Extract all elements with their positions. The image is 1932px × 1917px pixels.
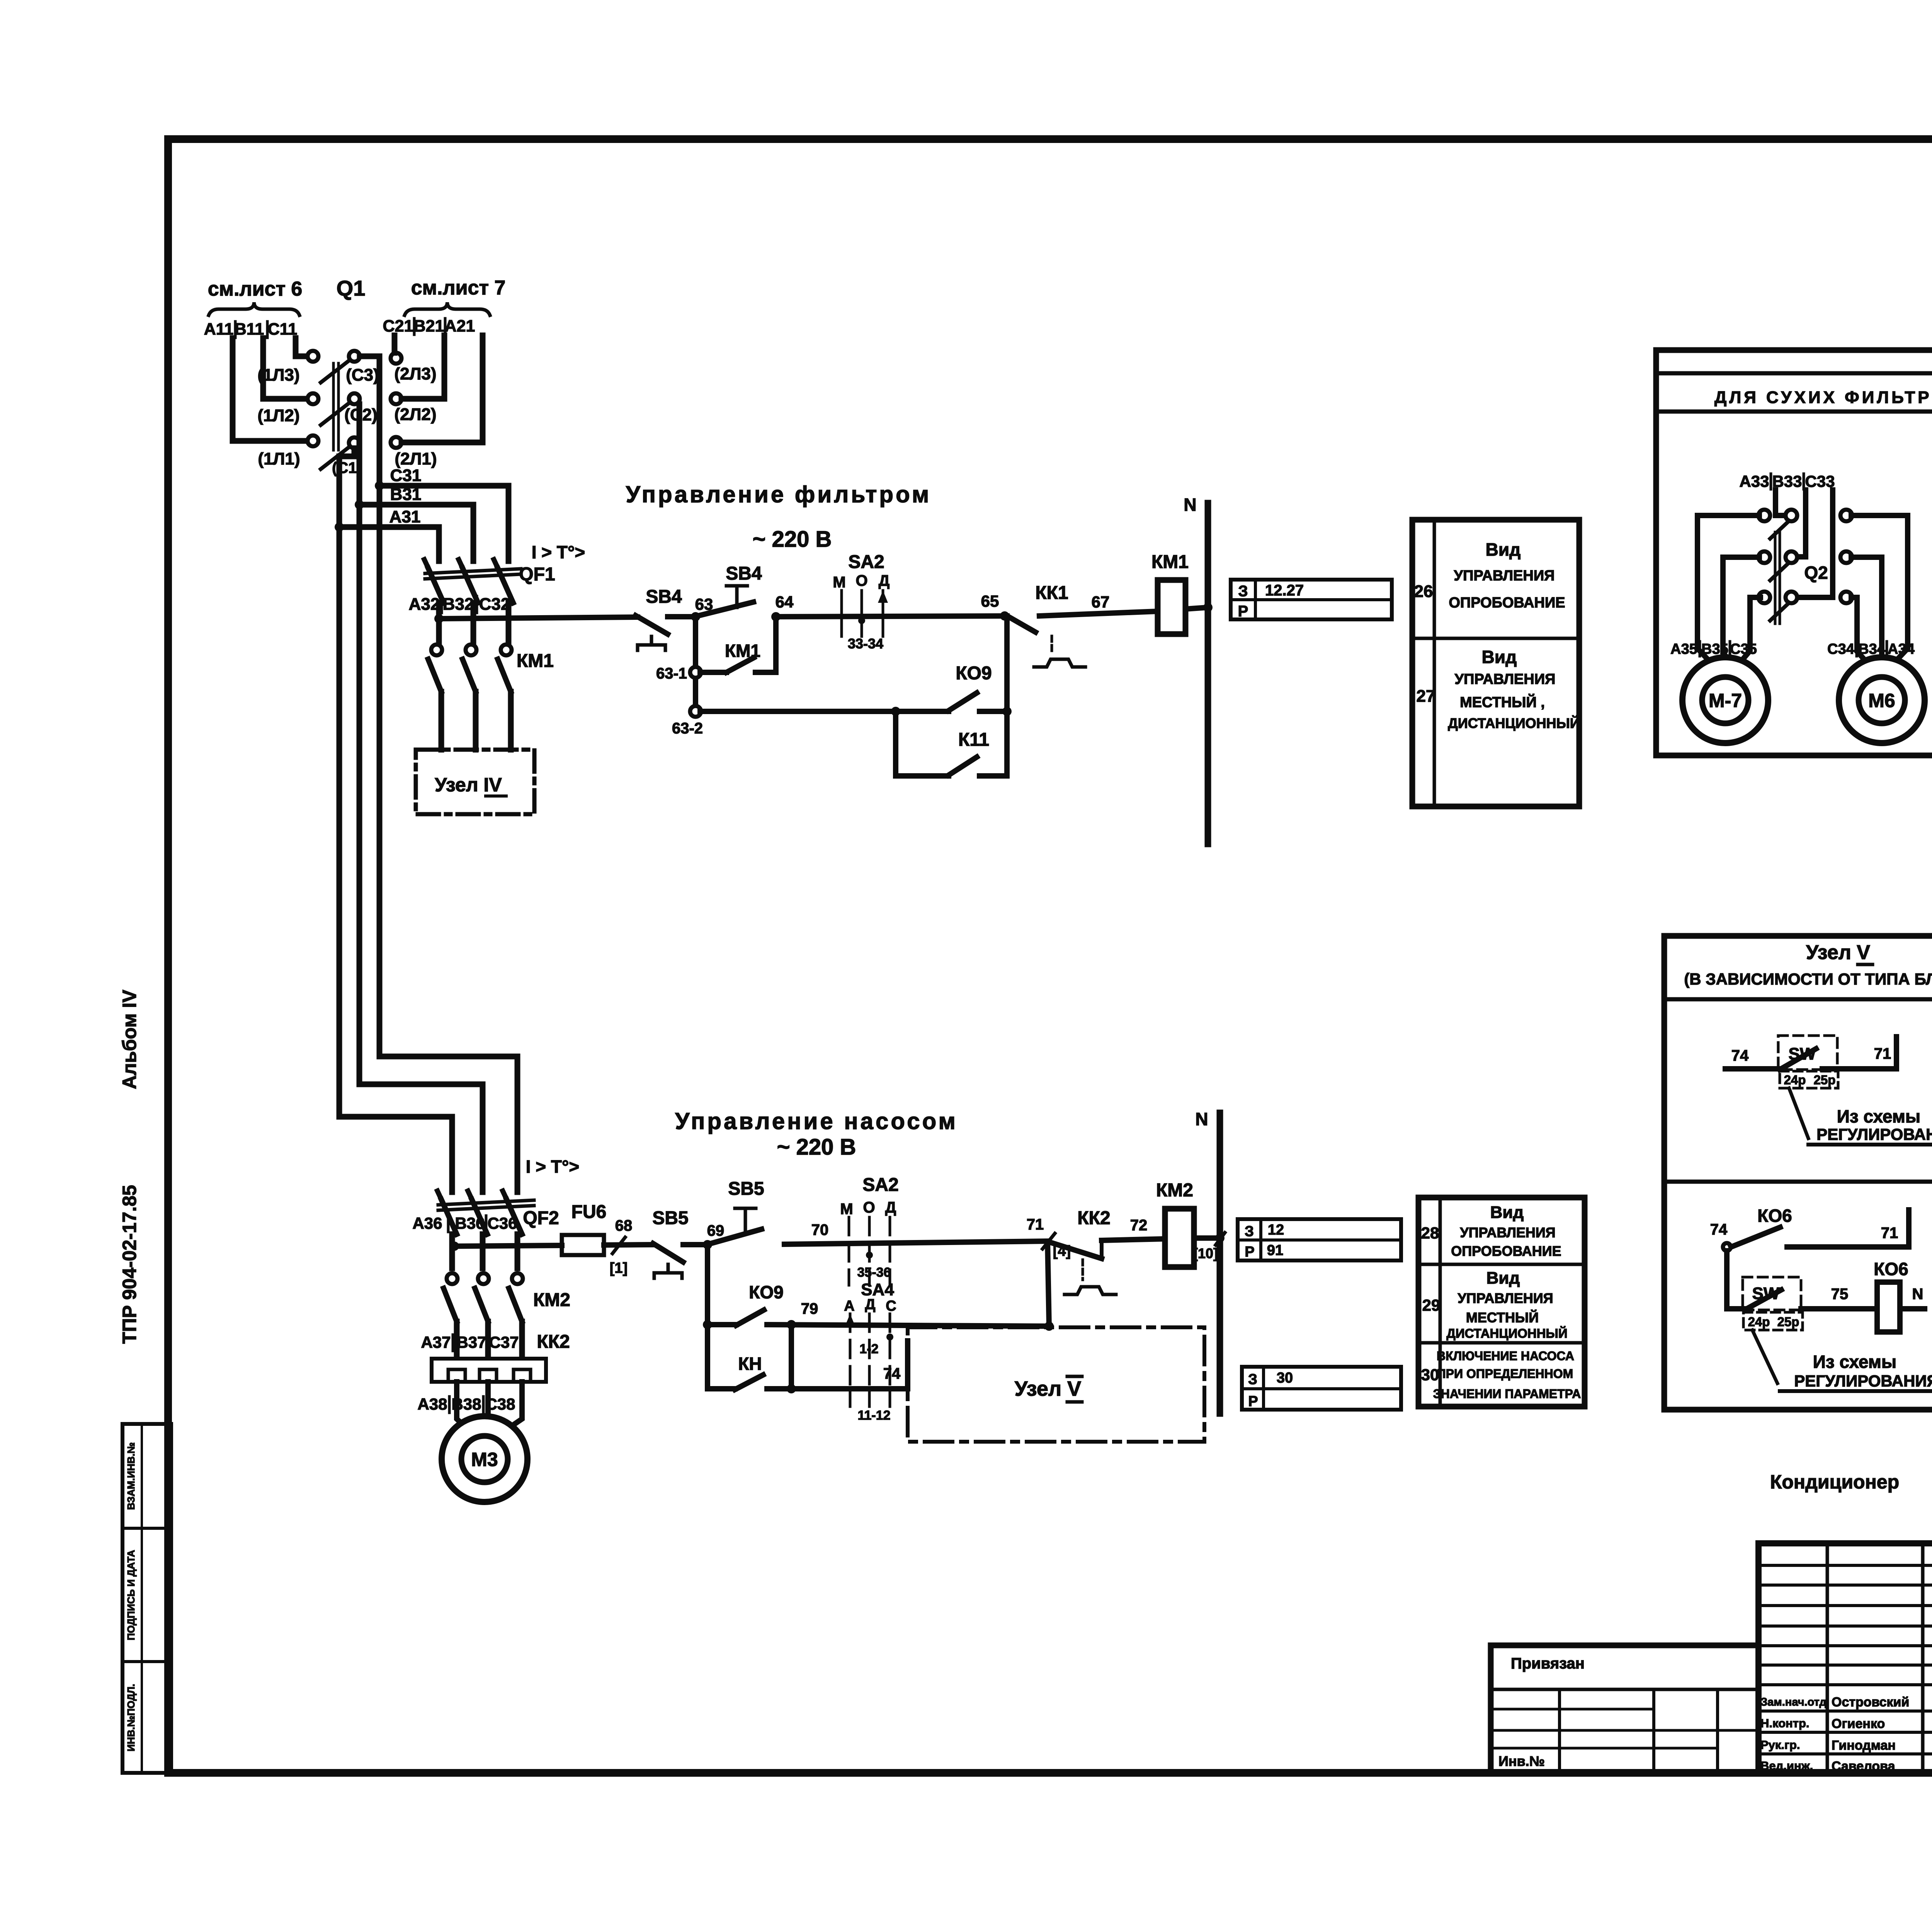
svg-text:ПРИ ОПРЕДЕЛЕННОМ: ПРИ ОПРЕДЕЛЕННОМ — [1437, 1367, 1573, 1381]
svg-text:(2Л2): (2Л2) — [394, 405, 436, 424]
svg-text:Альбом IV: Альбом IV — [119, 990, 140, 1089]
svg-text:Вид: Вид — [1486, 539, 1521, 560]
svg-text:(1Л1): (1Л1) — [258, 449, 300, 468]
svg-text:67: 67 — [1092, 593, 1110, 611]
svg-text:Из схемы: Из схемы — [1837, 1106, 1920, 1126]
svg-text:65: 65 — [981, 592, 999, 610]
svg-text:71: 71 — [1027, 1216, 1044, 1233]
svg-text:SA2: SA2 — [862, 1175, 898, 1195]
svg-text:УПРАВЛЕНИЯ: УПРАВЛЕНИЯ — [1460, 1225, 1555, 1240]
svg-text:Вид: Вид — [1486, 1269, 1520, 1288]
svg-text:(1Л3): (1Л3) — [257, 366, 299, 384]
svg-text:Островский: Островский — [1832, 1695, 1909, 1709]
svg-text:Р: Р — [1238, 603, 1248, 620]
svg-text:С35: С35 — [1730, 641, 1757, 657]
svg-text:ВЗАМ.ИНВ.№: ВЗАМ.ИНВ.№ — [125, 1442, 137, 1510]
svg-text:SB5: SB5 — [728, 1179, 764, 1199]
svg-text:12.27: 12.27 — [1265, 582, 1304, 599]
svg-text:ИНВ.№ПОДЛ.: ИНВ.№ПОДЛ. — [125, 1684, 137, 1751]
svg-text:71: 71 — [1874, 1045, 1891, 1062]
svg-text:(2Л3): (2Л3) — [394, 364, 436, 383]
svg-text:С32: С32 — [479, 595, 510, 614]
svg-text:Узел IV: Узел IV — [435, 774, 502, 796]
svg-text:С: С — [886, 1298, 896, 1314]
svg-text:63-2: 63-2 — [672, 720, 703, 737]
svg-text:ДИСТАНЦИОННЫЙ: ДИСТАНЦИОННЫЙ — [1448, 715, 1580, 731]
svg-text:(1Л2): (1Л2) — [257, 406, 299, 425]
svg-text:Вед.инж.: Вед.инж. — [1760, 1759, 1813, 1772]
svg-text:КК2: КК2 — [537, 1332, 570, 1352]
svg-text:МЕСТНЫЙ: МЕСТНЫЙ — [1466, 1309, 1539, 1325]
svg-text:А35: А35 — [1670, 641, 1697, 657]
svg-text:Управление фильтром: Управление фильтром — [626, 481, 932, 507]
svg-text:I > T°>: I > T°> — [532, 542, 585, 562]
svg-text:КН: КН — [738, 1354, 762, 1374]
svg-text:Инв.№: Инв.№ — [1498, 1753, 1545, 1769]
svg-text:А31: А31 — [389, 507, 421, 526]
svg-text:КК1: КК1 — [1035, 583, 1068, 603]
svg-text:С31: С31 — [390, 466, 422, 485]
svg-text:~ 220 В: ~ 220 В — [753, 527, 832, 552]
svg-text:КО9: КО9 — [749, 1282, 783, 1302]
svg-text:70: 70 — [811, 1221, 829, 1238]
svg-text:Рук.гр.: Рук.гр. — [1760, 1738, 1800, 1752]
svg-text:25р: 25р — [1814, 1073, 1836, 1087]
svg-text:Кондиционер: Кондиционер — [1770, 1471, 1899, 1493]
svg-text:КМ1: КМ1 — [1151, 552, 1189, 572]
svg-text:КО6: КО6 — [1874, 1259, 1908, 1279]
svg-text:А34: А34 — [1888, 641, 1915, 657]
svg-text:74: 74 — [1710, 1221, 1728, 1238]
svg-text:Р: Р — [1245, 1244, 1254, 1260]
svg-text:Управление насосом: Управление насосом — [675, 1108, 958, 1134]
svg-text:А37: А37 — [421, 1333, 451, 1351]
svg-text:см.лист 6: см.лист 6 — [208, 278, 303, 300]
svg-text:25р: 25р — [1777, 1315, 1799, 1329]
svg-text:11-12: 11-12 — [857, 1408, 890, 1423]
svg-text:В37: В37 — [456, 1333, 486, 1351]
svg-text:Зам.нач.отд: Зам.нач.отд — [1760, 1696, 1827, 1708]
svg-text:(С3): (С3) — [346, 366, 379, 384]
svg-text:М: М — [833, 574, 845, 591]
svg-text:З: З — [1238, 583, 1248, 600]
svg-text:35-36: 35-36 — [857, 1265, 891, 1280]
svg-text:О: О — [855, 572, 867, 589]
svg-text:12: 12 — [1268, 1222, 1284, 1238]
svg-text:ДЛЯ СУХИХ ФИЛЬТРОВ: ДЛЯ СУХИХ ФИЛЬТРОВ — [1714, 388, 1932, 407]
svg-text:УПРАВЛЕНИЯ: УПРАВЛЕНИЯ — [1454, 568, 1555, 584]
svg-text:33-34: 33-34 — [848, 636, 883, 651]
svg-text:QF2: QF2 — [523, 1208, 559, 1228]
svg-text:А36: А36 — [412, 1214, 442, 1232]
svg-text:Привязан: Привязан — [1511, 1655, 1585, 1672]
svg-text:ТПР 904-02-17.85: ТПР 904-02-17.85 — [119, 1185, 140, 1344]
svg-text:Р: Р — [1248, 1393, 1258, 1410]
svg-text:30: 30 — [1277, 1370, 1293, 1386]
svg-text:В11: В11 — [235, 320, 264, 338]
svg-text:26: 26 — [1414, 582, 1433, 601]
svg-text:В32: В32 — [443, 595, 474, 614]
svg-text:В21: В21 — [414, 317, 444, 335]
svg-text:В36: В36 — [455, 1214, 485, 1232]
svg-text:Из схемы: Из схемы — [1813, 1352, 1896, 1372]
svg-text:SB5: SB5 — [652, 1208, 688, 1228]
svg-text:КМ1: КМ1 — [725, 641, 760, 661]
svg-text:А38: А38 — [417, 1395, 447, 1413]
svg-text:QF1: QF1 — [519, 564, 555, 585]
svg-text:К11: К11 — [958, 730, 989, 750]
svg-text:УПРАВЛЕНИЯ: УПРАВЛЕНИЯ — [1458, 1290, 1553, 1306]
svg-text:64: 64 — [776, 593, 794, 611]
svg-text:ОПРОБОВАНИЕ: ОПРОБОВАНИЕ — [1449, 595, 1565, 611]
svg-text:FU6: FU6 — [571, 1202, 607, 1222]
svg-text:КО6: КО6 — [1757, 1206, 1792, 1226]
svg-text:N: N — [1912, 1286, 1923, 1303]
svg-text:Узел V: Узел V — [1015, 1377, 1081, 1400]
svg-text:РЕГУЛИРОВАНИЯ: РЕГУЛИРОВАНИЯ — [1794, 1372, 1932, 1390]
svg-text:(В ЗАВИСИМОСТИ ОТ ТИПА БЛОКА): (В ЗАВИСИМОСТИ ОТ ТИПА БЛОКА) — [1684, 970, 1932, 988]
svg-text:N: N — [1184, 495, 1196, 515]
svg-text:ЗНАЧЕНИИ ПАРАМЕТРА: ЗНАЧЕНИИ ПАРАМЕТРА — [1433, 1387, 1581, 1401]
svg-text:КМ2: КМ2 — [1156, 1180, 1193, 1201]
svg-text:Вид: Вид — [1490, 1203, 1524, 1222]
svg-text:РЕГУЛИРОВАНИЯ: РЕГУЛИРОВАНИЯ — [1816, 1125, 1932, 1143]
svg-text:[1]: [1] — [610, 1260, 628, 1276]
svg-text:А32: А32 — [409, 595, 440, 614]
svg-text:SA2: SA2 — [848, 552, 884, 572]
svg-text:С21: С21 — [383, 317, 413, 335]
svg-text:N: N — [1195, 1109, 1208, 1129]
svg-text:72: 72 — [1130, 1217, 1148, 1234]
svg-text:Вид: Вид — [1482, 647, 1517, 667]
svg-text:С37: С37 — [489, 1333, 519, 1351]
svg-text:Узел V: Узел V — [1806, 941, 1870, 964]
svg-text:Д: Д — [865, 1296, 875, 1313]
svg-text:С34: С34 — [1827, 641, 1854, 657]
svg-text:Гинодман: Гинодман — [1832, 1738, 1896, 1753]
svg-text:З: З — [1248, 1371, 1257, 1388]
svg-text:Q2: Q2 — [1804, 563, 1828, 583]
svg-text:С36: С36 — [487, 1214, 517, 1232]
svg-text:КМ2: КМ2 — [533, 1290, 570, 1310]
svg-text:М3: М3 — [471, 1449, 498, 1470]
svg-text:МЕСТНЫЙ ,: МЕСТНЫЙ , — [1460, 693, 1545, 711]
svg-text:SB4: SB4 — [726, 563, 762, 584]
svg-text:КК2: КК2 — [1077, 1208, 1110, 1228]
svg-text:М: М — [840, 1201, 853, 1218]
svg-text:М-7: М-7 — [1709, 690, 1742, 711]
svg-text:28: 28 — [1421, 1224, 1439, 1242]
svg-text:А11: А11 — [204, 320, 234, 338]
svg-text:Огиенко: Огиенко — [1832, 1716, 1885, 1731]
svg-text:УПРАВЛЕНИЯ: УПРАВЛЕНИЯ — [1455, 671, 1556, 687]
svg-text:68: 68 — [615, 1217, 633, 1234]
svg-text:27: 27 — [1417, 687, 1435, 706]
svg-text:ПОДПИСЬ И ДАТА: ПОДПИСЬ И ДАТА — [125, 1550, 137, 1640]
svg-text:29: 29 — [1422, 1296, 1440, 1314]
svg-text:71: 71 — [1881, 1225, 1898, 1242]
svg-text:74: 74 — [883, 1365, 901, 1382]
svg-text:КО9: КО9 — [956, 663, 992, 684]
svg-text:А21: А21 — [445, 317, 475, 335]
svg-text:75: 75 — [1831, 1286, 1849, 1303]
svg-text:I > T°>: I > T°> — [526, 1157, 580, 1177]
svg-text:ОПРОБОВАНИЕ: ОПРОБОВАНИЕ — [1451, 1243, 1561, 1259]
svg-text:Q1: Q1 — [337, 276, 366, 300]
svg-text:63-1: 63-1 — [656, 665, 687, 682]
svg-text:КМ1: КМ1 — [517, 651, 554, 671]
svg-text:(2Л1): (2Л1) — [395, 449, 437, 468]
svg-text:[10]: [10] — [1193, 1245, 1218, 1261]
svg-text:А: А — [844, 1298, 854, 1314]
svg-text:ДИСТАНЦИОННЫЙ: ДИСТАНЦИОННЫЙ — [1446, 1326, 1567, 1340]
svg-text:30: 30 — [1421, 1366, 1439, 1384]
svg-text:79: 79 — [801, 1300, 818, 1317]
svg-text:Н.контр.: Н.контр. — [1760, 1716, 1810, 1730]
svg-text:24р: 24р — [1748, 1315, 1770, 1329]
svg-text:А33: А33 — [1739, 472, 1769, 490]
svg-text:69: 69 — [707, 1222, 724, 1239]
svg-text:см.лист 7: см.лист 7 — [411, 277, 506, 299]
svg-text:SB4: SB4 — [646, 587, 682, 607]
svg-text:74: 74 — [1731, 1047, 1749, 1064]
svg-text:91: 91 — [1267, 1242, 1283, 1259]
svg-text:Д: Д — [885, 1199, 896, 1216]
svg-text:Д: Д — [879, 572, 890, 589]
svg-text:1-2: 1-2 — [859, 1342, 878, 1356]
svg-text:М6: М6 — [1868, 690, 1895, 711]
svg-text:Савелова: Савелова — [1832, 1759, 1896, 1774]
svg-text:З: З — [1245, 1223, 1254, 1240]
svg-text:О: О — [863, 1199, 875, 1216]
svg-text:24р: 24р — [1784, 1073, 1806, 1087]
svg-text:В31: В31 — [390, 485, 422, 504]
svg-text:ВКЛЮЧЕНИЕ НАСОСА: ВКЛЮЧЕНИЕ НАСОСА — [1437, 1349, 1574, 1363]
svg-text:~ 220 В: ~ 220 В — [777, 1135, 856, 1160]
